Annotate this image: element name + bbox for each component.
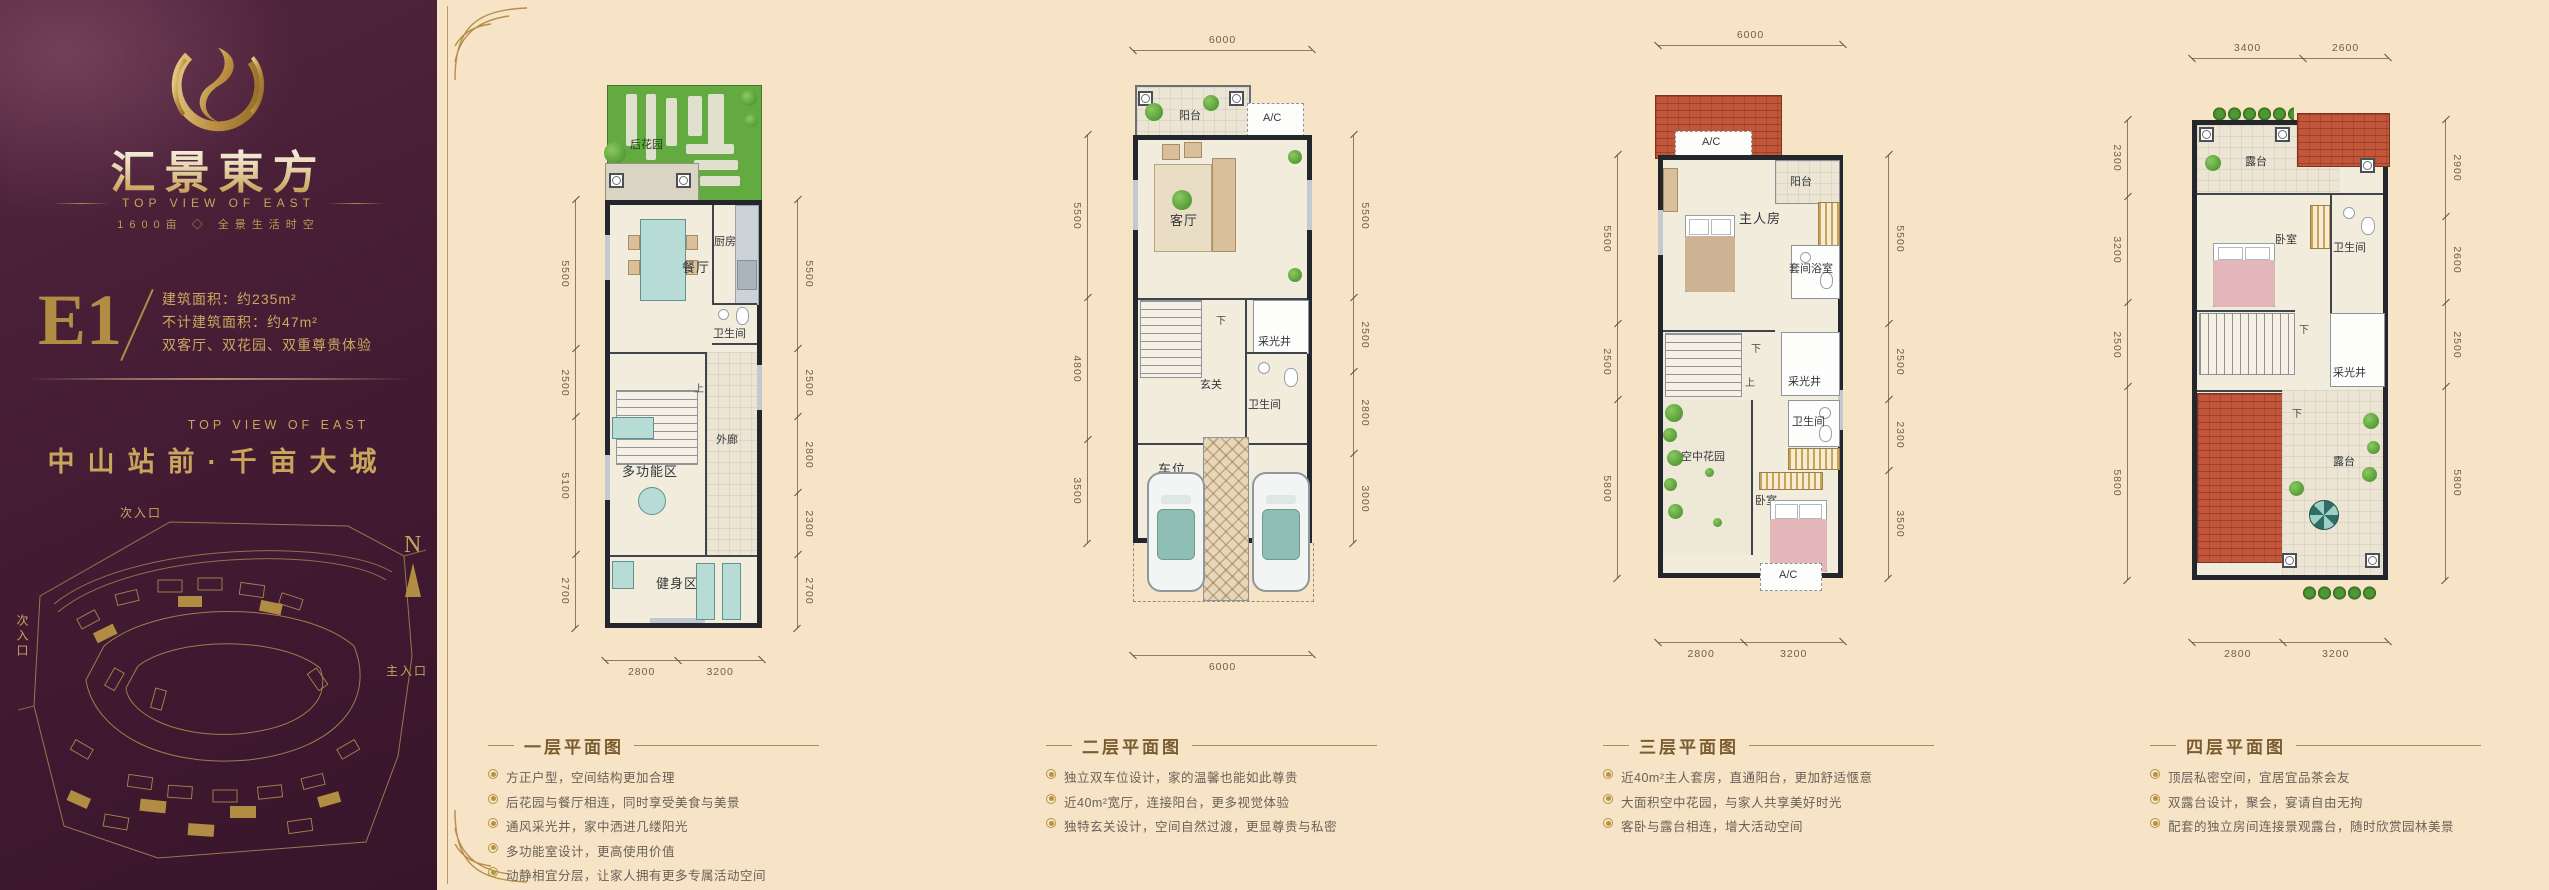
ac-label: A/C	[1779, 569, 1797, 581]
dim-segment: 2900	[2445, 120, 2446, 217]
pillar-icon	[609, 173, 624, 188]
lightwell-label: 采光井	[1258, 333, 1291, 349]
bullet-item: 近40m²主人套房，直通阳台，更加舒适惬意	[1603, 767, 2103, 786]
bullet-icon	[1046, 794, 1056, 804]
umbrella-table	[2309, 500, 2339, 530]
pillow	[1711, 219, 1731, 235]
wall	[1245, 352, 1307, 354]
bullet-text: 客卧与露台相连，增大活动空间	[1621, 816, 1803, 835]
bullet-text: 方正户型，空间结构更加合理	[506, 767, 675, 786]
dim-segment: 2600	[2303, 58, 2388, 59]
dim-segment: 2300	[2127, 120, 2128, 197]
dim-segment: 3500	[1888, 471, 1889, 578]
window	[1658, 210, 1663, 255]
garden-path	[700, 176, 740, 186]
floor1-building: 厨房 餐厅 卫生间 景观 上	[605, 200, 762, 628]
roof	[2297, 113, 2390, 167]
entry-main-label: 主入口	[386, 662, 428, 679]
garden-path	[708, 94, 724, 149]
sink-icon	[2343, 207, 2355, 219]
dim-segment: 2700	[797, 555, 798, 628]
tree-icon	[604, 142, 626, 164]
floor3-title: 三层平面图	[1603, 733, 2103, 758]
floor4-plan: 3400 2600 露台 卧室	[2080, 30, 2500, 690]
bath-label: 卫生间	[1248, 396, 1281, 412]
dim-segment: 5800	[1617, 400, 1618, 578]
dim-segment: 2800	[797, 417, 798, 493]
stove	[737, 260, 757, 290]
dim-segment: 3200	[2127, 197, 2128, 304]
blanket	[2213, 260, 2275, 307]
tree-icon	[1705, 468, 1714, 477]
bullet-item: 多功能室设计，更高使用价值	[488, 841, 988, 860]
dim-segment: 2600	[2445, 217, 2446, 304]
cabinet	[612, 561, 634, 589]
ac-unit: A/C	[1675, 131, 1752, 157]
tree-icon	[2362, 467, 2377, 482]
sink-icon	[718, 309, 729, 320]
dim-segment: 5500	[1087, 135, 1088, 298]
bullet-icon	[1603, 794, 1613, 804]
floor2-description: 二层平面图 独立双车位设计，家的温馨也能如此尊贵 近40m²宽厅，连接阳台，更多…	[1046, 733, 1546, 841]
window	[1133, 180, 1138, 230]
site-map: 次入口 次入口 主入口 N	[8, 494, 430, 884]
bullet-icon	[1603, 769, 1613, 779]
brand-subtitle: TOP VIEW OF EAST	[0, 196, 437, 210]
pillow	[2218, 247, 2243, 260]
title-line	[2150, 745, 2176, 746]
dim-segment: 6000	[1658, 45, 1843, 46]
staircase	[1140, 300, 1202, 378]
wall	[610, 352, 705, 354]
dim-segment: 2500	[2445, 303, 2446, 386]
sink-icon	[1258, 362, 1270, 374]
ac-label: A/C	[1702, 136, 1720, 148]
dim-segment: 3200	[678, 660, 762, 661]
plant-icon	[2205, 155, 2221, 171]
foyer-label: 玄关	[1200, 376, 1222, 392]
up-label: 上	[694, 380, 704, 395]
bullet-icon	[2150, 818, 2160, 828]
bullet-icon	[488, 794, 498, 804]
floor1-title: 一层平面图	[488, 733, 988, 758]
wall	[2197, 310, 2295, 312]
corner-flourish-icon	[451, 4, 531, 84]
kitchen-label: 厨房	[714, 233, 736, 249]
wall	[2197, 193, 2383, 195]
pillow	[1775, 504, 1798, 519]
sidebar: 汇景東方 TOP VIEW OF EAST 1600亩 ◇ 全景生活时空 E1 …	[0, 0, 437, 890]
divider-line	[327, 203, 385, 204]
bullet-text: 顶层私密空间，宜居宜品茶会友	[2168, 767, 2350, 786]
title-line	[488, 745, 514, 746]
closet	[1788, 448, 1840, 470]
treadmill	[722, 563, 741, 620]
car-windshield	[1161, 495, 1191, 504]
master-bed	[1685, 215, 1735, 292]
bullet-icon	[2150, 794, 2160, 804]
plant-icon	[1203, 95, 1219, 111]
kitchen-counter	[735, 205, 759, 305]
floor4-bullets: 顶层私密空间，宜居宜品茶会友 双露台设计，聚会，宴请自由无拘 配套的独立房间连接…	[2150, 767, 2545, 835]
window	[757, 365, 762, 410]
planter-row	[2212, 107, 2294, 121]
planter-row	[2302, 586, 2376, 600]
driveway-hatch	[1203, 437, 1249, 601]
window	[605, 455, 610, 500]
chair	[628, 260, 640, 275]
dining-table	[640, 219, 686, 301]
bullet-text: 后花园与餐厅相连，同时享受美食与美景	[506, 792, 740, 811]
sofa	[612, 417, 654, 439]
car-roof	[1262, 509, 1300, 560]
wall	[1751, 400, 1753, 555]
wall	[1245, 298, 1247, 443]
dim-segment: 2700	[575, 555, 576, 628]
chair	[686, 235, 698, 250]
pillar-icon	[676, 173, 691, 188]
pillar-icon	[2282, 553, 2297, 568]
sky-garden-label: 空中花园	[1681, 448, 1725, 464]
gym-label: 健身区	[656, 573, 698, 592]
up-label: 上	[1745, 374, 1755, 389]
dim-segment: 6000	[1133, 655, 1312, 656]
bullet-text: 通风采光井，家中洒进几缕阳光	[506, 816, 688, 835]
car-icon	[1147, 472, 1205, 592]
window	[1307, 180, 1312, 230]
bullet-text: 近40m²主人套房，直通阳台，更加舒适惬意	[1621, 767, 1872, 786]
title-line	[1046, 745, 1072, 746]
ac-label: A/C	[1263, 112, 1281, 124]
dim-segment: 3400	[2192, 58, 2303, 59]
slash-divider	[120, 289, 154, 361]
pillar-icon	[2360, 158, 2375, 173]
brand-subtitle-text: TOP VIEW OF EAST	[122, 196, 315, 210]
entry-left-label: 次入口	[14, 614, 31, 659]
bed	[1770, 500, 1827, 572]
down-label: 下	[1216, 312, 1226, 327]
floor1-title-text: 一层平面图	[524, 733, 624, 758]
car-windshield	[1266, 495, 1296, 504]
wall	[712, 205, 714, 305]
wall	[1663, 330, 1775, 332]
gold-divider-line	[447, 6, 448, 884]
wardrobe	[1759, 472, 1823, 490]
plant-icon	[1288, 268, 1302, 282]
tree-icon	[741, 90, 757, 106]
floor3-building: 阳台 主人房 套间浴室 下	[1658, 155, 1843, 578]
bullet-item: 独特玄关设计，空间自然过渡，更显尊贵与私密	[1046, 816, 1546, 835]
light-well: 采光井	[1781, 332, 1840, 396]
ac-unit: A/C	[1760, 563, 1822, 591]
unit-code: E1	[38, 286, 122, 354]
floor2-plan: 6000 阳台 A/C	[1040, 35, 1440, 695]
tree-icon	[2289, 481, 2304, 496]
bullet-text: 大面积空中花园，与家人共享美好时光	[1621, 792, 1842, 811]
wall	[712, 343, 757, 345]
garden-label: 后花园	[630, 136, 663, 152]
down-label: 下	[2292, 405, 2302, 420]
bullet-icon	[488, 843, 498, 853]
lightwell-label: 采光井	[2333, 364, 2366, 380]
garden-path	[688, 96, 702, 136]
bullet-item: 通风采光井，家中洒进几缕阳光	[488, 816, 988, 835]
window	[605, 235, 610, 280]
sky-garden: 空中花园	[1663, 400, 1751, 555]
floor3-bullets: 近40m²主人套房，直通阳台，更加舒适惬意 大面积空中花园，与家人共享美好时光 …	[1603, 767, 2103, 835]
dim-segment: 2300	[797, 493, 798, 555]
toilet-icon	[1284, 368, 1298, 387]
dim-segment: 5500	[1617, 155, 1618, 324]
toilet-icon	[2361, 217, 2375, 235]
tree-icon	[1664, 478, 1677, 491]
tree-icon	[2367, 441, 2380, 454]
corridor-floor	[707, 352, 757, 557]
unit-details: 建筑面积：约235m² 不计建筑面积：约47m² 双客厅、双花园、双重尊贵体验	[162, 286, 372, 357]
master-label: 主人房	[1739, 208, 1781, 227]
bullet-icon	[488, 818, 498, 828]
floor4-title-text: 四层平面图	[2186, 733, 2286, 758]
light-well: 采光井	[2330, 313, 2385, 387]
bullet-icon	[2150, 769, 2160, 779]
title-line	[634, 745, 819, 746]
phoenix-logo-icon	[158, 28, 278, 146]
garden-path	[694, 160, 738, 170]
floor2-bullets: 独立双车位设计，家的温馨也能如此尊贵 近40m²宽厅，连接阳台，更多视觉体验 独…	[1046, 767, 1546, 835]
north-letter: N	[404, 532, 421, 558]
garden-path	[666, 98, 677, 146]
bath-label: 卫生间	[713, 325, 746, 341]
wardrobe	[2310, 205, 2332, 249]
plant-icon	[1172, 190, 1192, 210]
sofa	[1212, 158, 1236, 252]
roof	[2197, 393, 2284, 563]
light-well: 采光井	[1253, 300, 1309, 354]
title-line	[2296, 745, 2481, 746]
pillar-icon	[2199, 127, 2214, 142]
floor3-title-text: 三层平面图	[1639, 733, 1739, 758]
unit-area-extra: 不计建筑面积：约47m²	[162, 311, 372, 334]
pillow	[1689, 219, 1709, 235]
tree-icon	[1668, 504, 1683, 519]
plans-area: 后花园 厨房 餐厅	[437, 0, 2549, 890]
dim-segment: 5500	[797, 200, 798, 349]
dim-segment: 5800	[2127, 387, 2128, 580]
balcony-label: 阳台	[1179, 107, 1201, 123]
entry-top-label: 次入口	[120, 504, 162, 521]
dim-segment: 2800	[1353, 372, 1354, 455]
unit-features: 双客厅、双花园、双重尊贵体验	[162, 334, 372, 357]
armchair	[1184, 142, 1202, 158]
bed	[2213, 243, 2275, 307]
bullet-item: 双露台设计，聚会，宴请自由无拘	[2150, 792, 2545, 811]
tree-icon	[745, 114, 758, 127]
slogan-en: TOP VIEW OF EAST	[120, 418, 437, 432]
down-label: 下	[1751, 340, 1761, 355]
site-map-drawing	[8, 494, 430, 884]
unit-area-built: 建筑面积：约235m²	[162, 288, 372, 311]
floor2-title-text: 二层平面图	[1082, 733, 1182, 758]
dim-segment: 5100	[575, 417, 576, 555]
tree-icon	[1663, 428, 1677, 442]
dim-segment: 5500	[1353, 135, 1354, 298]
wall	[610, 555, 757, 557]
garden-patio	[605, 163, 699, 202]
pillar-icon	[2365, 553, 2380, 568]
dim-segment: 6000	[1133, 50, 1312, 51]
desk	[1663, 168, 1678, 212]
bullet-item: 配套的独立房间连接景观露台，随时欣赏园林美景	[2150, 816, 2545, 835]
bullet-item: 后花园与餐厅相连，同时享受美食与美景	[488, 792, 988, 811]
bullet-text: 多功能室设计，更高使用价值	[506, 841, 675, 860]
dim-segment: 2800	[2192, 642, 2283, 643]
dim-segment: 5500	[575, 200, 576, 349]
dim-segment: 2500	[575, 349, 576, 417]
bullet-icon	[1603, 818, 1613, 828]
unit-info: E1 建筑面积：约235m² 不计建筑面积：约47m² 双客厅、双花园、双重尊贵…	[38, 286, 372, 364]
round-table	[638, 487, 666, 515]
dim-segment: 2800	[1658, 642, 1744, 643]
floor3-description: 三层平面图 近40m²主人套房，直通阳台，更加舒适惬意 大面积空中花园，与家人共…	[1603, 733, 2103, 841]
bullet-icon	[488, 769, 498, 779]
pillar-icon	[2275, 127, 2290, 142]
corridor-label: 外廊	[716, 431, 738, 447]
toilet-icon	[736, 307, 749, 325]
bullet-item: 近40m²宽厅，连接阳台，更多视觉体验	[1046, 792, 1546, 811]
balcony-label: 阳台	[1790, 173, 1812, 189]
multi-label: 多功能区	[622, 461, 678, 480]
floor4-title: 四层平面图	[2150, 733, 2545, 758]
plant-icon	[1145, 103, 1163, 121]
brand-tagline: 1600亩 ◇ 全景生活时空	[0, 216, 437, 232]
north-compass: N	[404, 532, 421, 597]
dim-segment: 3200	[2283, 642, 2388, 643]
wall	[2330, 193, 2332, 313]
down-label: 下	[2299, 321, 2309, 336]
floor1-plan: 后花园 厨房 餐厅	[540, 75, 840, 720]
treadmill	[696, 563, 715, 620]
dim-segment: 2500	[1617, 324, 1618, 401]
blanket	[1685, 236, 1735, 293]
dim-segment: 2800	[605, 660, 678, 661]
title-line	[1749, 745, 1934, 746]
plant-icon	[1288, 150, 1302, 164]
bathroom: 卫生间	[1788, 400, 1840, 447]
living-label: 客厅	[1170, 210, 1198, 229]
lightwell-label: 采光井	[1788, 373, 1821, 389]
bedroom-label: 卧室	[2275, 231, 2297, 247]
car-roof	[1157, 509, 1195, 560]
dim-segment: 2500	[2127, 303, 2128, 386]
bullet-text: 双露台设计，聚会，宴请自由无拘	[2168, 792, 2363, 811]
divider-line	[52, 203, 110, 204]
pillow	[2245, 247, 2270, 260]
bullet-item: 独立双车位设计，家的温馨也能如此尊贵	[1046, 767, 1546, 786]
dim-segment: 3500	[1087, 440, 1088, 543]
dim-segment: 3000	[1353, 454, 1354, 543]
floor1-description: 一层平面图 方正户型，空间结构更加合理 后花园与餐厅相连，同时享受美食与美景 通…	[488, 733, 988, 890]
car-icon	[1252, 472, 1310, 592]
floor3-plan: 6000 A/C 阳台 主人房	[1560, 30, 1960, 690]
bullet-text: 近40m²宽厅，连接阳台，更多视觉体验	[1064, 792, 1289, 811]
bullet-item: 客卧与露台相连，增大活动空间	[1603, 816, 2103, 835]
ac-unit: A/C	[1247, 103, 1304, 137]
chair	[628, 235, 640, 250]
dim-segment: 4800	[1087, 298, 1088, 440]
brand-name: 汇景東方	[0, 136, 437, 201]
tree-icon	[1713, 518, 1722, 527]
dim-segment: 3200	[1744, 642, 1843, 643]
title-line	[1603, 745, 1629, 746]
bullet-text: 配套的独立房间连接景观露台，随时欣赏园林美景	[2168, 816, 2454, 835]
dim-segment: 2500	[1353, 298, 1354, 372]
bullet-item: 顶层私密空间，宜居宜品茶会友	[2150, 767, 2545, 786]
dim-segment: 2300	[1888, 400, 1889, 471]
floor1-bullets: 方正户型，空间结构更加合理 后花园与餐厅相连，同时享受美食与美景 通风采光井，家…	[488, 767, 988, 884]
floor4-description: 四层平面图 顶层私密空间，宜居宜品茶会友 双露台设计，聚会，宴请自由无拘 配套的…	[2150, 733, 2545, 841]
garden-path	[686, 144, 734, 154]
suite-bath-label: 套间浴室	[1789, 260, 1833, 276]
balcony: 阳台	[1135, 85, 1251, 139]
armchair	[1162, 144, 1180, 160]
bullet-item: 大面积空中花园，与家人共享美好时光	[1603, 792, 2103, 811]
title-line	[1192, 745, 1377, 746]
floor4-building: 露台 卧室 卫生间 下	[2192, 120, 2388, 580]
bullet-text: 独立双车位设计，家的温馨也能如此尊贵	[1064, 767, 1298, 786]
bullet-icon	[1046, 818, 1056, 828]
north-arrow-icon	[405, 563, 421, 597]
dim-segment: 5500	[1888, 155, 1889, 324]
staircase	[1665, 333, 1742, 397]
bullet-text: 独特玄关设计，空间自然过渡，更显尊贵与私密	[1064, 816, 1337, 835]
terrace2-label: 露台	[2333, 453, 2355, 469]
terrace-label: 露台	[2245, 153, 2267, 169]
wall	[712, 303, 757, 305]
bullet-item: 方正户型，空间结构更加合理	[488, 767, 988, 786]
pillar-icon	[1229, 91, 1244, 106]
dim-segment: 5800	[2445, 387, 2446, 580]
bullet-item: 动静相宜分层，让家人拥有更多专属活动空间	[488, 865, 988, 884]
bath-label: 卫生间	[2333, 239, 2366, 255]
dining-label: 餐厅	[682, 257, 710, 276]
divider	[28, 378, 409, 380]
bullet-icon	[488, 867, 498, 877]
dim-segment: 2500	[797, 349, 798, 417]
slogan-cn: 中山站前·千亩大城	[0, 440, 437, 479]
tree-icon	[2363, 413, 2379, 429]
dim-segment: 2500	[1888, 324, 1889, 401]
floor2-title: 二层平面图	[1046, 733, 1546, 758]
tree-icon	[1665, 404, 1683, 422]
bath-label: 卫生间	[1792, 413, 1825, 429]
bullet-text: 动静相宜分层，让家人拥有更多专属活动空间	[506, 865, 766, 884]
brochure-canvas: 汇景東方 TOP VIEW OF EAST 1600亩 ◇ 全景生活时空 E1 …	[0, 0, 2549, 890]
staircase	[2199, 313, 2295, 375]
bullet-icon	[1046, 769, 1056, 779]
pillow	[1799, 504, 1822, 519]
balcony: 阳台	[1775, 160, 1840, 204]
